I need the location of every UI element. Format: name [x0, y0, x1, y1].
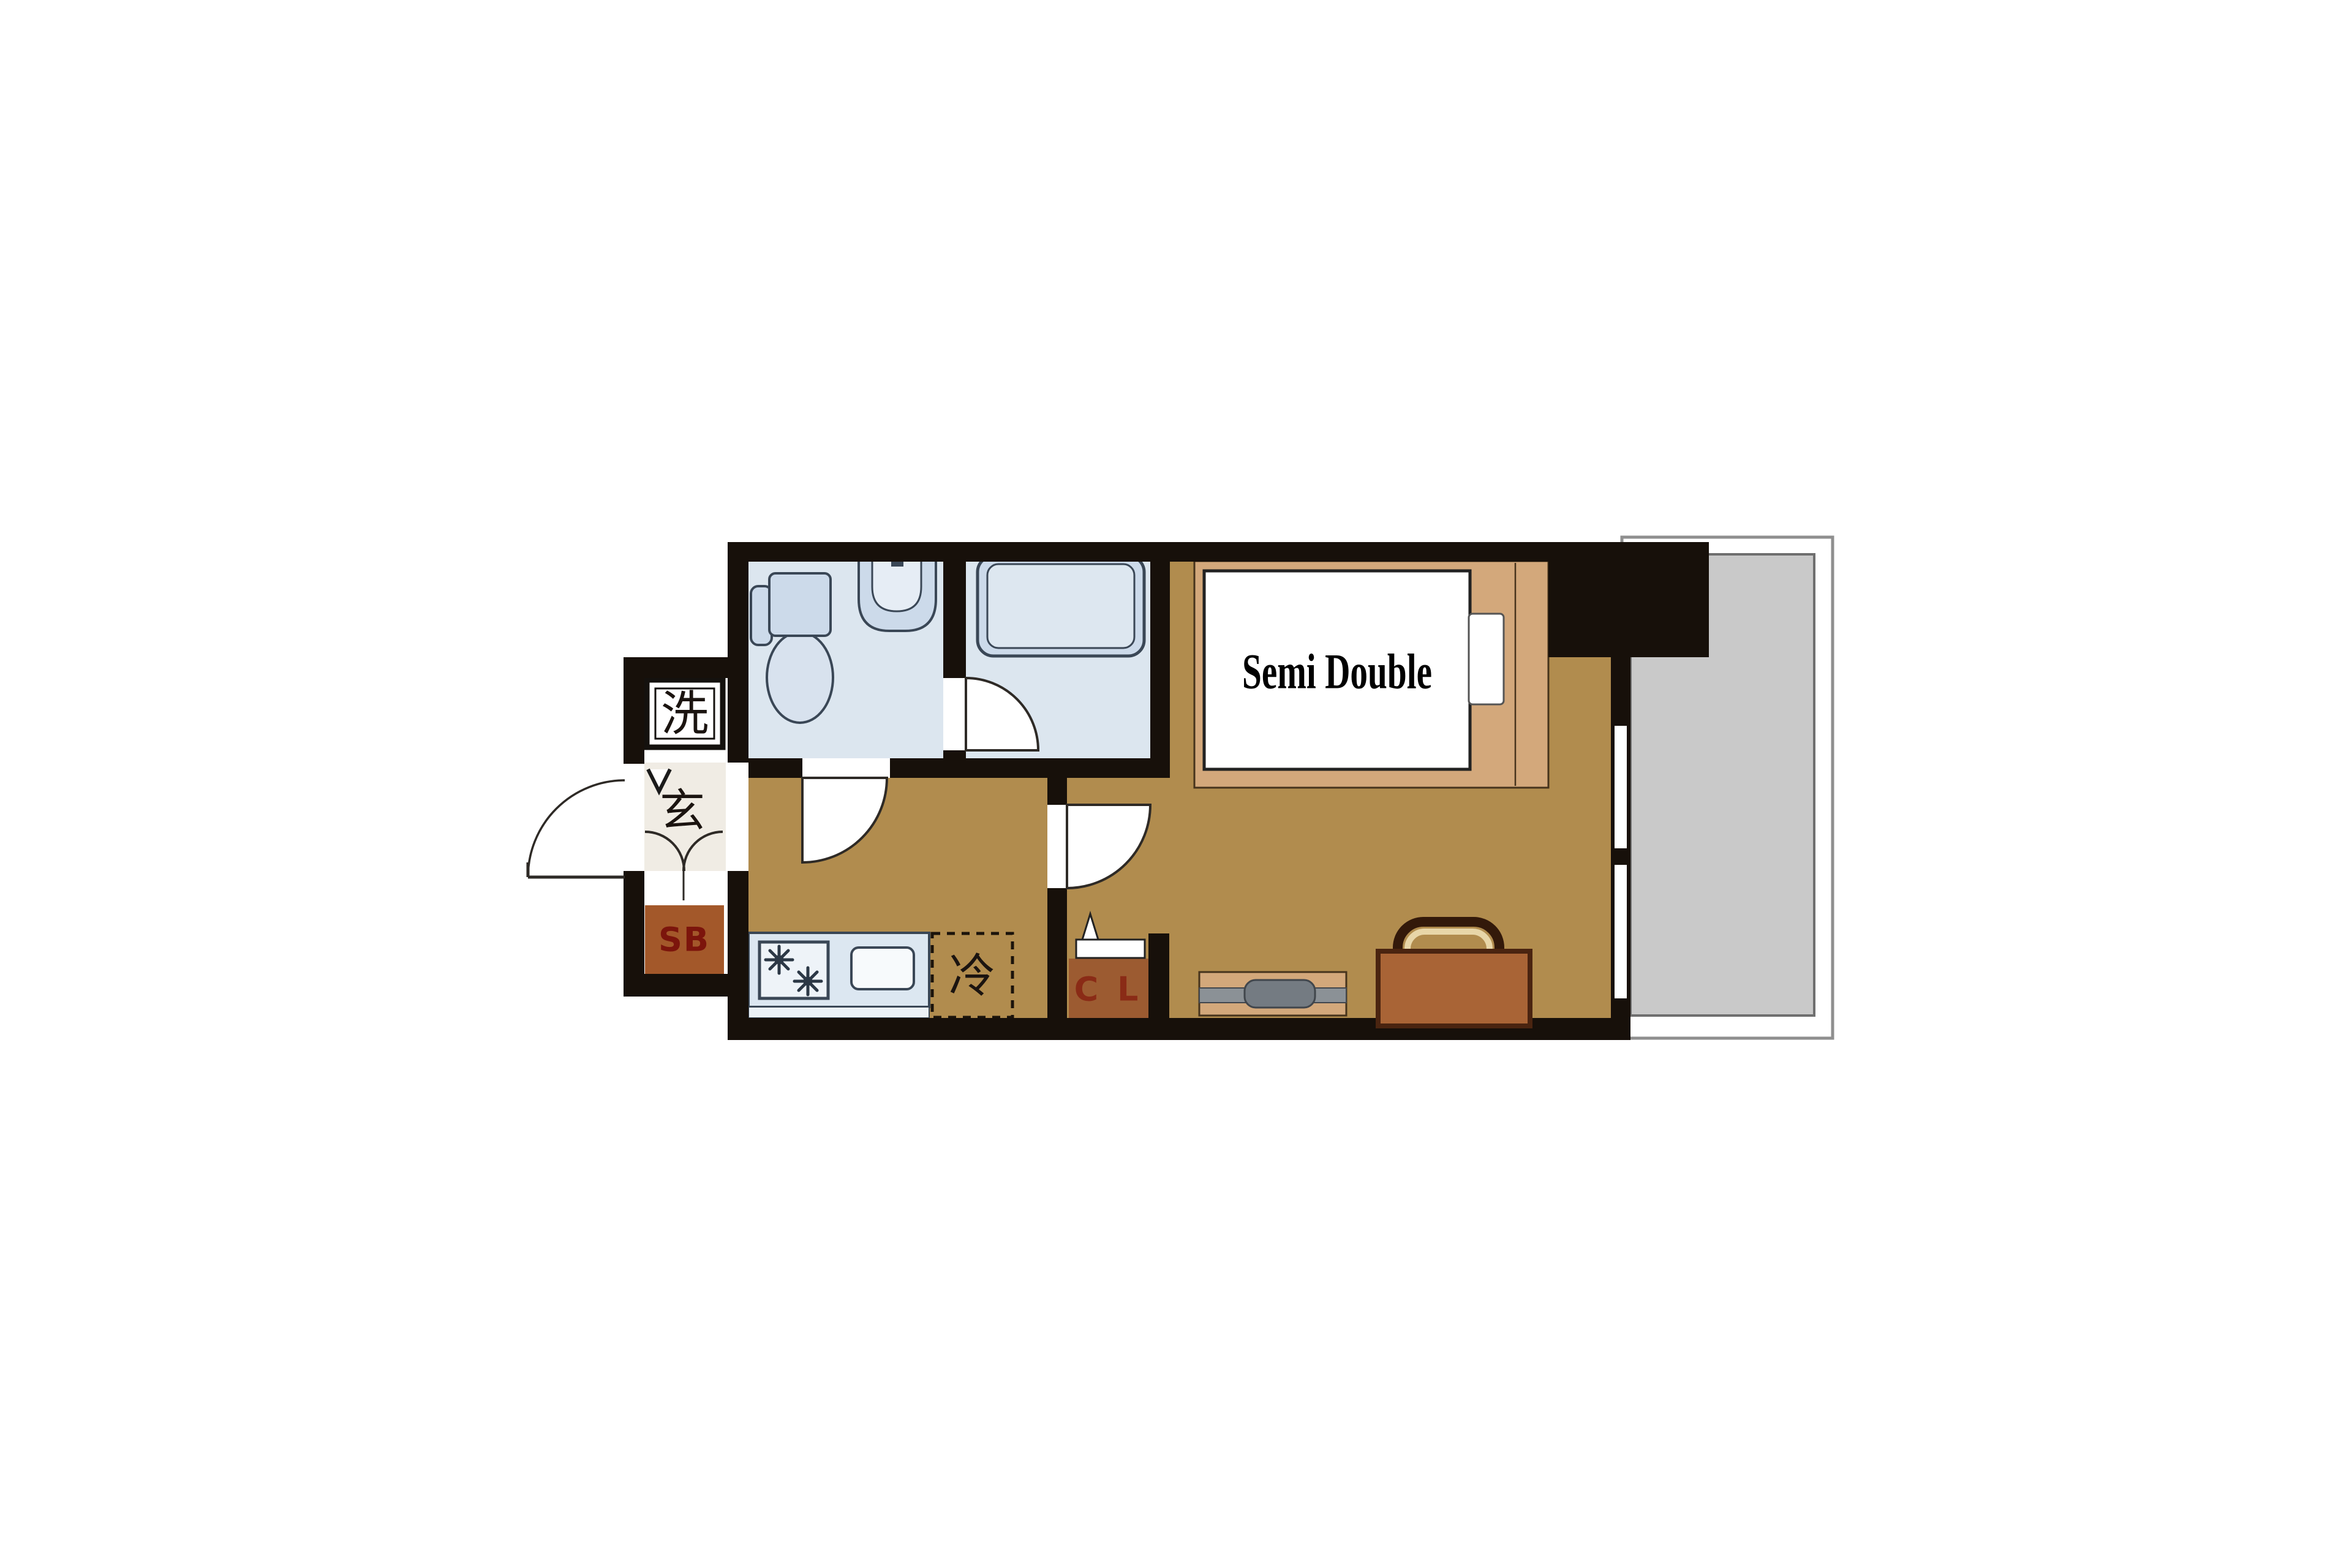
entrance-hall-opening — [728, 763, 748, 871]
front-door-opening — [624, 764, 644, 871]
tv-icon — [1245, 980, 1315, 1008]
kitchen-counter — [748, 933, 929, 1018]
shoe-box-label: SB — [658, 921, 710, 959]
wall-bathroom-right — [1150, 542, 1170, 778]
semi-double-bed: Semi Double — [1194, 561, 1548, 788]
hand-basin — [859, 553, 936, 631]
pillar — [1548, 542, 1709, 657]
bathtub-inner — [987, 564, 1134, 648]
washing-machine-space: 洗 — [647, 680, 723, 747]
wall-protrusion-left-upper — [624, 657, 644, 764]
wall-bedroom-lower — [1047, 888, 1067, 1040]
wall-toilet-bottom-right — [890, 758, 1170, 778]
entrance-label: 玄 — [660, 785, 705, 837]
toilet-tank — [769, 573, 831, 636]
burner-icon — [794, 968, 821, 995]
bathtub — [978, 556, 1144, 656]
floor-plan: 冷 洗 玄 SB Semi Double — [0, 0, 2352, 1568]
refrigerator-label: 冷 — [949, 949, 995, 1003]
tv-board — [1199, 972, 1346, 1016]
wall-bath-divider-upper — [943, 542, 966, 678]
sliding-window-pane-lower — [1615, 865, 1627, 998]
sliding-window-pane-upper — [1615, 726, 1627, 848]
wall-bath-divider-lower — [943, 750, 966, 778]
bed-size-label: Semi Double — [1242, 644, 1432, 699]
toilet-door-opening — [802, 758, 890, 778]
burner-icon — [766, 946, 793, 973]
washer-label: 洗 — [661, 687, 709, 742]
wall-top — [728, 542, 1569, 562]
suitcase-body — [1378, 951, 1530, 1026]
toilet-bowl — [767, 632, 833, 723]
wall-closet-right — [1148, 933, 1169, 1040]
closet-door — [1076, 940, 1145, 958]
pillow — [1469, 614, 1504, 704]
entrance-area: 洗 玄 SB — [644, 678, 726, 974]
bathroom-door-opening — [943, 678, 966, 750]
closet-label: C L — [1074, 970, 1142, 1009]
kitchen-sink — [851, 948, 914, 989]
wall-bedroom-stub — [1047, 778, 1067, 805]
entrance-step — [644, 871, 726, 905]
wall-toilet-bottom-left — [748, 758, 802, 778]
bedroom-door-opening — [1047, 805, 1067, 888]
wall-protrusion-bottom — [624, 974, 728, 997]
kitchen-counter-lip — [748, 1007, 929, 1018]
